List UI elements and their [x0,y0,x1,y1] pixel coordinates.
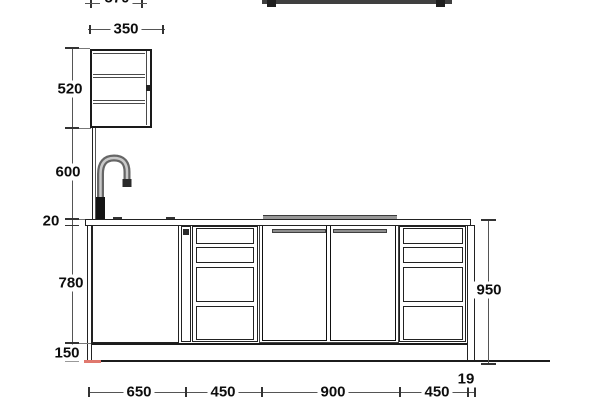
cad-drawing-canvas: 570 350 [0,0,600,400]
faucet [88,150,138,220]
filler-door-handle [183,229,189,235]
dim-label-900: 900 [317,384,348,400]
dim-label-520: 520 [54,81,85,98]
dim-570-tick-right [141,0,143,8]
sink-base-cabinet [92,225,179,343]
left-tick-219 [65,218,79,220]
bottom-tick-1 [185,387,187,397]
left-tick-343 [65,342,79,344]
worktop [85,219,471,226]
drawer-left-4 [196,306,254,340]
cutoff-hood-bar [262,0,452,4]
right-tick-bottom [481,363,496,365]
dim-label-950: 950 [473,282,504,299]
wall-cabinet-top-inner-line [93,53,145,54]
dim-350-tick-right [162,25,164,34]
drawer-right-1 [403,228,463,244]
wall-cabinet [90,49,152,128]
right-tick-top [481,219,496,221]
drawer-left-1 [196,228,254,244]
dim-label-450a: 450 [207,384,238,400]
wall-cabinet-shelf-1a [93,74,145,75]
dim-570-tick-left [90,0,92,8]
drawer-right-2 [403,247,463,263]
door-left-handle [272,229,326,233]
door-right-handle [333,229,387,233]
plinth-line [92,343,467,345]
drawer-right-3 [403,267,463,302]
bottom-tick-3 [399,387,401,397]
dim-label-570: 570 [101,0,132,7]
filler-door [181,226,191,342]
drawer-left-3 [196,267,254,302]
dim-label-150: 150 [51,345,82,362]
dim-label-19: 19 [455,371,478,388]
bottom-tick-5 [474,387,476,397]
dim-label-600: 600 [52,164,83,181]
ext-line-cab-bottom [79,128,91,129]
dim-label-20: 20 [40,213,63,230]
red-origin-marker [84,360,101,363]
drawer-right-4 [403,306,463,340]
wall-cabinet-shelf-2a [93,100,145,101]
bottom-tick-0 [88,387,90,397]
drawer-left-2 [196,247,254,263]
dim-label-350: 350 [110,21,141,38]
bottom-tick-2 [261,387,263,397]
floor-line [87,360,550,362]
ext-line-cab-top [79,48,90,49]
wall-cabinet-shelf-2b [93,103,145,104]
left-tick-225 [65,225,79,227]
left-tick-48 [65,47,79,49]
cutoff-hood-nub-right [436,0,445,7]
door-right [330,224,396,341]
wall-cabinet-shelf-1b [93,77,145,78]
dim-570-line-left [85,3,100,4]
cutoff-hood-nub-left [267,0,276,7]
bottom-tick-4 [467,387,469,397]
left-tick-128 [65,127,79,129]
door-left [262,224,327,341]
wall-cabinet-handle [146,85,150,91]
dim-350-tick-left [89,25,91,34]
dim-label-780: 780 [55,275,86,292]
dim-570-line-right [132,3,147,4]
dim-label-450b: 450 [421,384,452,400]
dim-label-650: 650 [123,384,154,400]
